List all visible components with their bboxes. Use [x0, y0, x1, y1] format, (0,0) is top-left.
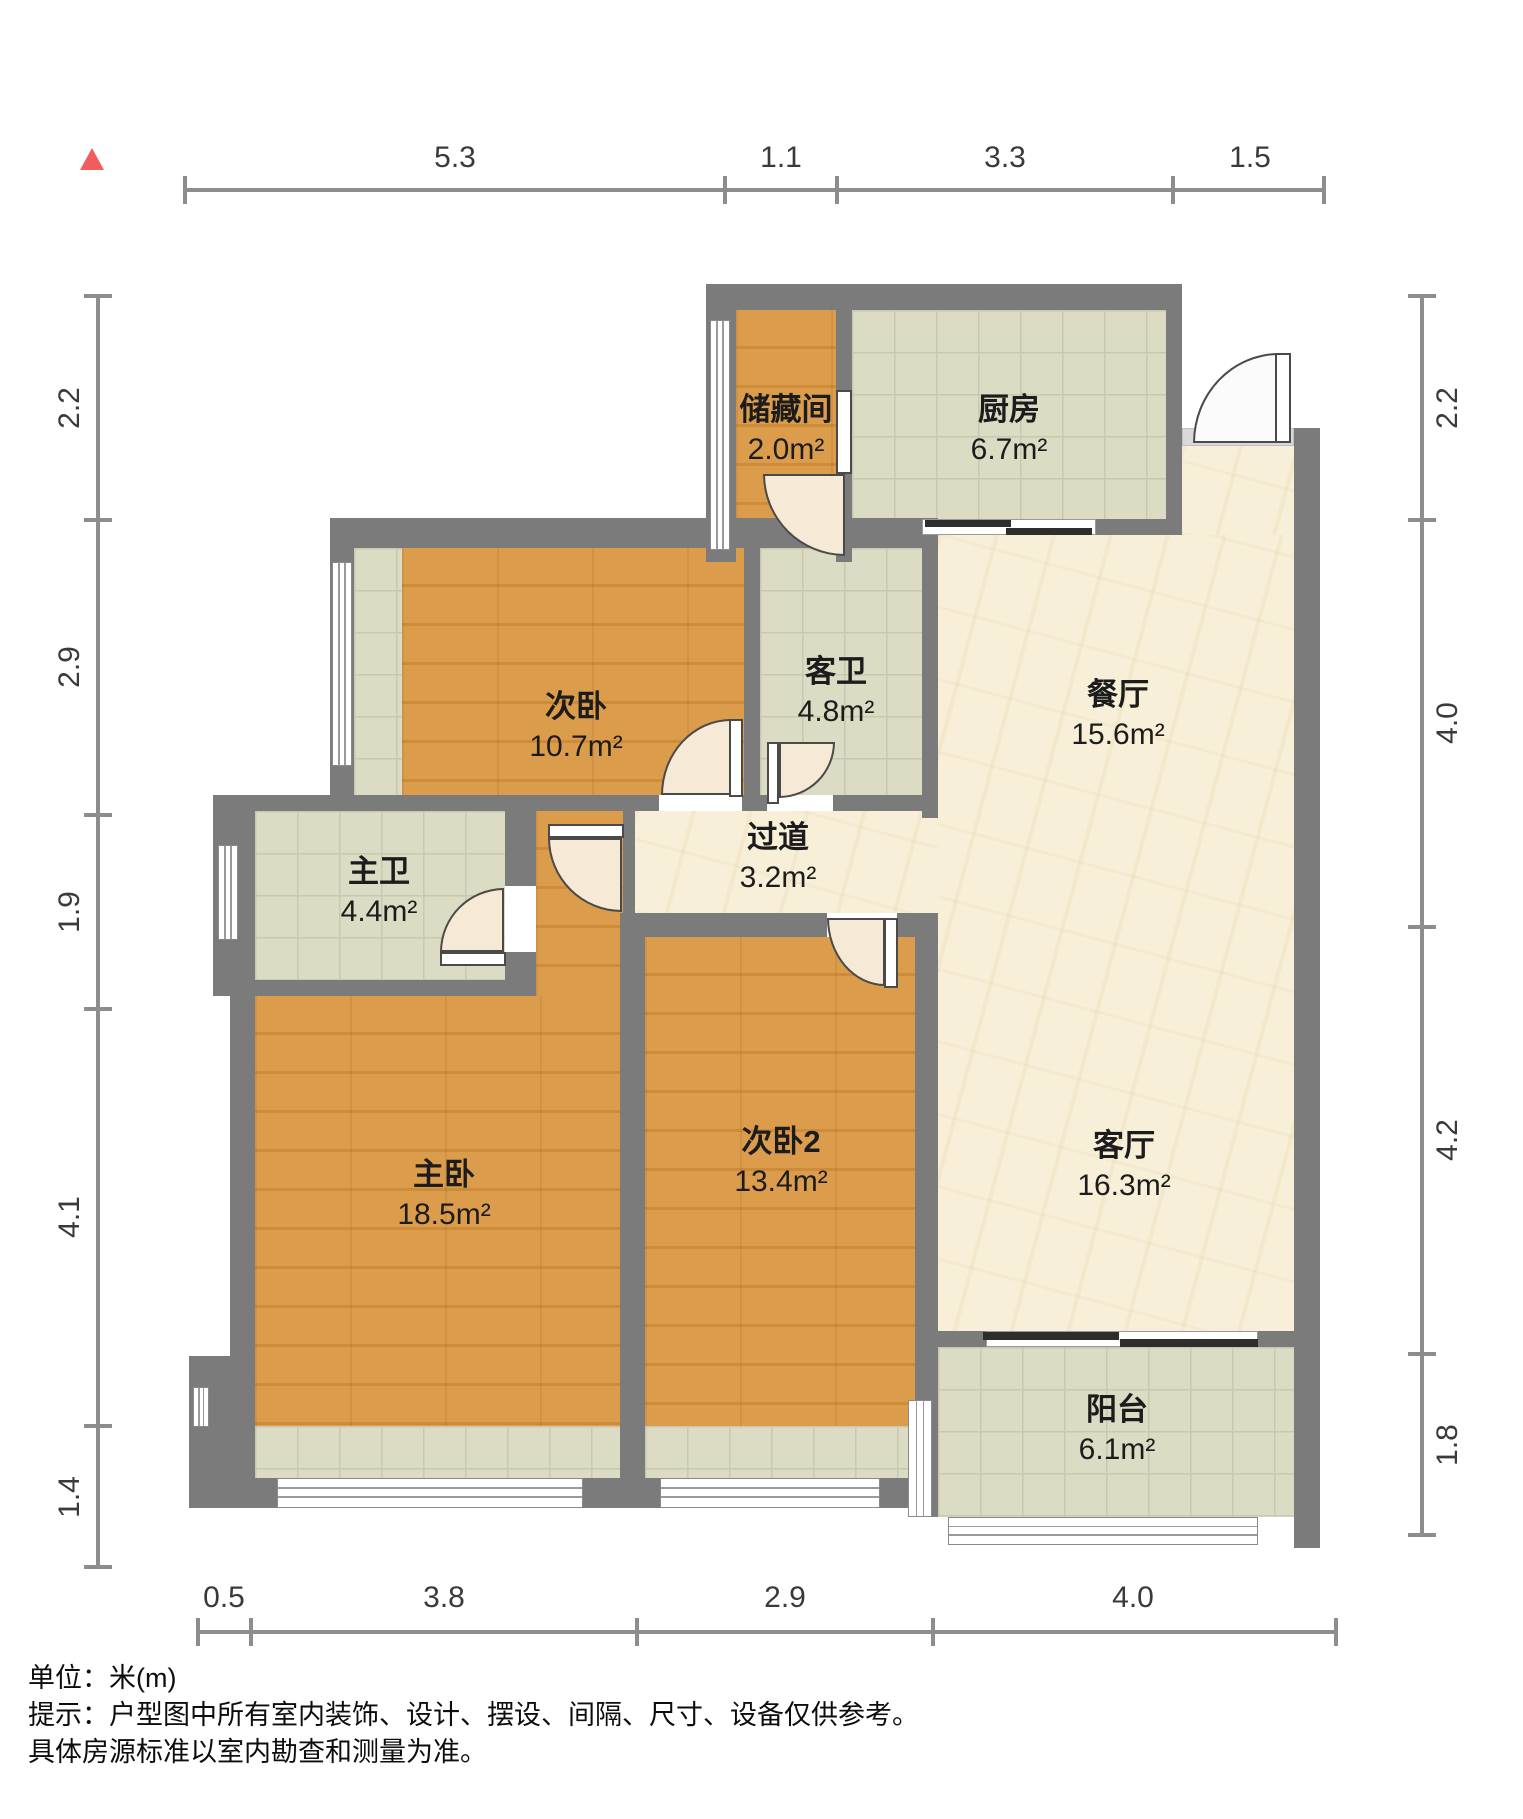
room-name-master-bedroom: 主卧 — [397, 1155, 490, 1195]
room-name-bedroom3: 次卧2 — [734, 1122, 827, 1162]
room-name-master-bath: 主卫 — [341, 852, 418, 892]
wall-bedrooms-top — [330, 518, 938, 548]
door-leaf-guest-bath — [767, 742, 779, 804]
wall-kitchen-right — [1166, 284, 1182, 535]
dim-top-0: 5.3 — [434, 141, 476, 175]
dim-right-3: 1.8 — [1431, 1424, 1465, 1466]
floor-bay-bedroom3 — [645, 1426, 915, 1478]
wall-mid-b — [742, 795, 767, 811]
room-area-storage: 2.0m² — [740, 430, 833, 470]
room-area-guest-bath: 4.8m² — [798, 692, 875, 732]
wall-guestbath-right — [922, 518, 938, 818]
dim-line-left — [96, 296, 100, 1569]
room-label-kitchen: 厨房 6.7m² — [971, 390, 1048, 470]
dim-left-4: 1.4 — [53, 1476, 87, 1518]
door-leaf-master-bedroom — [548, 824, 624, 838]
room-area-hallway: 3.2m² — [740, 858, 817, 898]
footer-tip2: 具体房源标准以室内勘查和测量为准。 — [28, 1734, 919, 1771]
window-bay-master — [277, 1478, 583, 1508]
floor-bay-master — [255, 1426, 620, 1478]
dim-right-0: 2.2 — [1431, 387, 1465, 429]
dim-top-1: 1.1 — [760, 141, 802, 175]
room-area-living: 16.3m² — [1077, 1166, 1170, 1206]
wall-bay-divider — [620, 1426, 645, 1508]
dim-tick — [1408, 1533, 1436, 1537]
window-bay-bedroom3 — [660, 1478, 880, 1508]
wall-bay1-stub-right — [583, 1478, 620, 1508]
floorplan-canvas: 储藏间 2.0m² 厨房 6.7m² 次卧 10.7m² 客卫 4.8m² 餐厅… — [0, 0, 1523, 1819]
sliding-door-balcony-bar2 — [1120, 1339, 1258, 1347]
door-leaf-entrance — [1275, 353, 1291, 443]
room-area-bedroom2: 10.7m² — [529, 727, 622, 767]
sliding-door-kitchen-bar2 — [1006, 528, 1092, 535]
wall-bedroom3-left — [620, 913, 645, 1426]
wall-bay1-stub-left — [255, 1478, 277, 1508]
room-area-master-bedroom: 18.5m² — [397, 1195, 490, 1235]
room-name-kitchen: 厨房 — [971, 390, 1048, 430]
room-label-master-bedroom: 主卧 18.5m² — [397, 1155, 490, 1235]
room-name-living: 客厅 — [1077, 1126, 1170, 1166]
floor-dining-living — [938, 535, 1294, 1333]
dim-tick — [1408, 294, 1436, 298]
dim-tick — [84, 294, 112, 298]
room-name-balcony: 阳台 — [1079, 1390, 1156, 1430]
dim-line-right — [1420, 296, 1424, 1537]
wall-hall-column — [623, 811, 635, 913]
dim-tick — [723, 176, 727, 204]
wall-corner-bl — [189, 1426, 255, 1508]
dim-line-top — [185, 188, 1326, 192]
room-name-storage: 储藏间 — [740, 390, 833, 430]
room-area-dining: 15.6m² — [1071, 715, 1164, 755]
room-label-balcony: 阳台 6.1m² — [1079, 1390, 1156, 1470]
dim-tick — [196, 1618, 200, 1646]
room-label-hallway: 过道 3.2m² — [740, 818, 817, 898]
dim-left-0: 2.2 — [53, 387, 87, 429]
door-leaf-bedroom2 — [729, 719, 743, 797]
room-name-hallway: 过道 — [740, 818, 817, 858]
wall-balcony-slide-left — [938, 1331, 986, 1347]
dim-left-2: 1.9 — [53, 891, 87, 933]
dim-bottom-1: 3.8 — [423, 1581, 465, 1615]
wall-hall-bottom-a — [635, 913, 827, 937]
dim-tick — [249, 1618, 253, 1646]
room-label-guest-bath: 客卫 4.8m² — [798, 652, 875, 732]
dim-line-bottom — [198, 1630, 1338, 1634]
room-label-master-bath: 主卫 4.4m² — [341, 852, 418, 932]
wall-mid-a — [213, 795, 659, 811]
wall-master-left — [230, 996, 255, 1426]
room-area-bedroom3: 13.4m² — [734, 1162, 827, 1202]
room-area-kitchen: 6.7m² — [971, 430, 1048, 470]
wall-balcony-slide-right — [1258, 1331, 1294, 1347]
room-label-storage: 储藏间 2.0m² — [740, 390, 833, 470]
wall-bedroom2-guestbath — [744, 548, 760, 795]
room-area-master-bath: 4.4m² — [341, 892, 418, 932]
dim-tick — [84, 813, 112, 817]
window-master-bath — [218, 845, 238, 940]
dim-right-1: 4.0 — [1431, 702, 1465, 744]
sliding-door-kitchen-bar1 — [925, 520, 1011, 527]
room-label-bedroom3: 次卧2 13.4m² — [734, 1122, 827, 1202]
dim-top-2: 3.3 — [984, 141, 1026, 175]
door-leaf-storage — [836, 390, 852, 474]
room-label-dining: 餐厅 15.6m² — [1071, 675, 1164, 755]
dim-tick — [183, 176, 187, 204]
door-leaf-master-bath — [440, 952, 506, 966]
footer-tip: 提示：户型图中所有室内装饰、设计、摆设、间隔、尺寸、设备仅供参考。 — [28, 1697, 919, 1734]
dim-tick — [931, 1618, 935, 1646]
dim-left-3: 4.1 — [53, 1196, 87, 1238]
footer-unit: 单位：米(m) — [28, 1660, 919, 1697]
dim-bottom-0: 0.5 — [203, 1581, 245, 1615]
room-name-bedroom2: 次卧 — [529, 687, 622, 727]
dim-tick — [84, 1424, 112, 1428]
dim-tick — [835, 176, 839, 204]
window-left-small — [193, 1387, 209, 1427]
footer-notes: 单位：米(m) 提示：户型图中所有室内装饰、设计、摆设、间隔、尺寸、设备仅供参考… — [28, 1660, 919, 1771]
window-balcony-railing — [948, 1517, 1258, 1545]
dim-tick — [84, 518, 112, 522]
dim-right-2: 4.2 — [1431, 1119, 1465, 1161]
wall-bedroom3-right — [915, 913, 938, 1333]
door-arc-entrance — [1193, 353, 1279, 443]
room-label-living: 客厅 16.3m² — [1077, 1126, 1170, 1206]
wall-bay2-stub-left — [645, 1478, 660, 1508]
dim-tick — [1322, 176, 1326, 204]
door-leaf-bedroom3 — [884, 918, 898, 988]
room-name-dining: 餐厅 — [1071, 675, 1164, 715]
dim-tick — [635, 1618, 639, 1646]
dim-tick — [1334, 1618, 1338, 1646]
dim-top-3: 1.5 — [1229, 141, 1271, 175]
sliding-door-balcony-bar1 — [983, 1332, 1119, 1340]
wall-top — [706, 284, 1182, 310]
window-bedroom2 — [332, 562, 352, 766]
dim-tick — [1408, 1352, 1436, 1356]
window-storage — [710, 320, 730, 550]
wall-kitchen-bottom-right — [1096, 519, 1166, 535]
dim-bottom-2: 2.9 — [764, 1581, 806, 1615]
dim-left-1: 2.9 — [53, 646, 87, 688]
dim-tick — [84, 1007, 112, 1011]
dim-tick — [1408, 925, 1436, 929]
dim-bottom-3: 4.0 — [1112, 1581, 1154, 1615]
room-area-balcony: 6.1m² — [1079, 1430, 1156, 1470]
wall-masterbath-right-top — [505, 811, 536, 886]
room-label-bedroom2: 次卧 10.7m² — [529, 687, 622, 767]
dim-tick — [84, 1565, 112, 1569]
wall-masterbath-bottom — [213, 980, 520, 996]
dim-tick — [1408, 518, 1436, 522]
window-balcony-side — [908, 1400, 932, 1517]
north-indicator-icon — [80, 148, 104, 170]
floor-bedroom2-strip — [354, 548, 402, 795]
wall-mid-c — [833, 795, 938, 811]
dim-tick — [1171, 176, 1175, 204]
wall-masterbath-right-bottom — [505, 952, 536, 996]
floor-dining-entry — [1182, 446, 1294, 535]
room-name-guest-bath: 客卫 — [798, 652, 875, 692]
wall-right-outer — [1294, 428, 1320, 1548]
